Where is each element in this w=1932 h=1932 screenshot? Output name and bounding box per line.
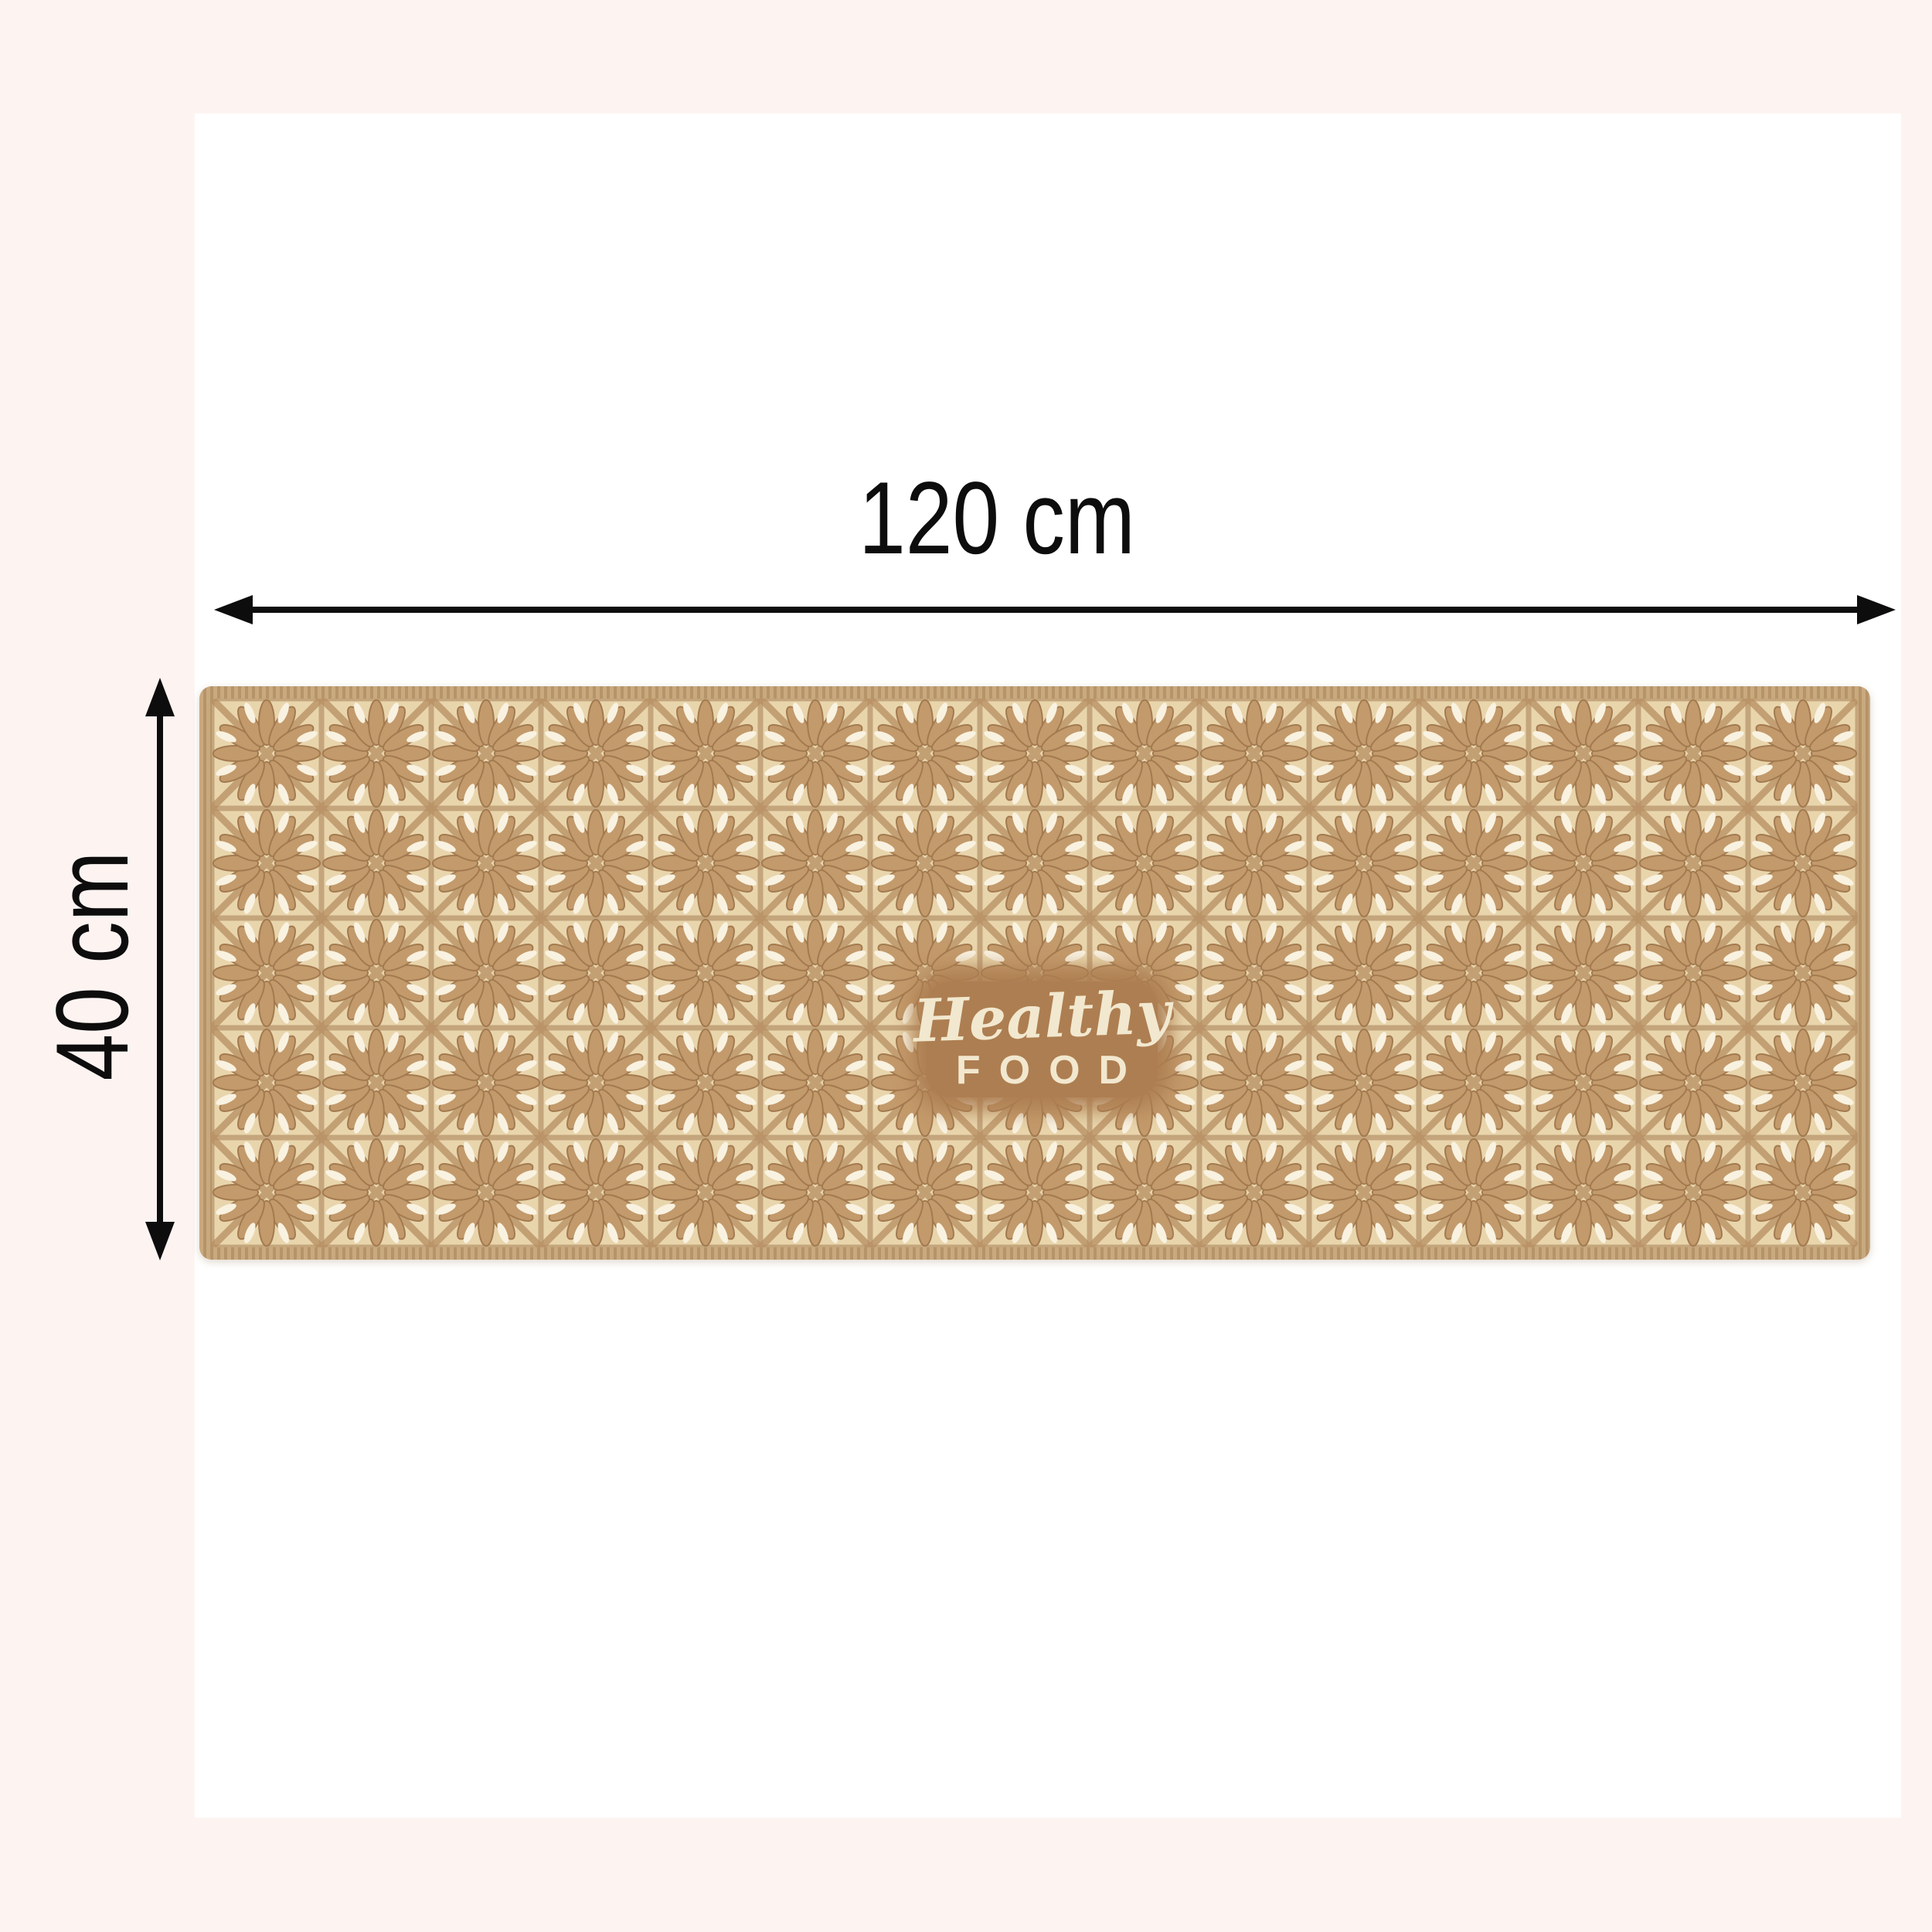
rug-photo: Healthy FOOD	[199, 686, 1870, 1260]
width-dimension-label: 120 cm	[807, 461, 1187, 577]
arrowhead-right-icon	[1857, 595, 1896, 624]
rug-print-healthy: Healthy	[912, 983, 1171, 1051]
height-dimension-label: 40 cm	[39, 808, 147, 1124]
rug-pattern	[212, 699, 1858, 1247]
width-dimension-arrow	[213, 588, 1897, 631]
arrowhead-left-icon	[214, 595, 253, 624]
height-dimension-arrow	[138, 676, 182, 1262]
rug-print-food: FOOD	[937, 1049, 1146, 1092]
rug-pattern-field: Healthy FOOD	[212, 699, 1858, 1247]
arrowhead-up-icon	[145, 678, 175, 716]
arrowhead-down-icon	[145, 1222, 175, 1260]
product-dimension-image: 120 cm 40 cm	[0, 0, 1932, 1932]
rug-center-patch: Healthy FOOD	[926, 981, 1158, 1097]
